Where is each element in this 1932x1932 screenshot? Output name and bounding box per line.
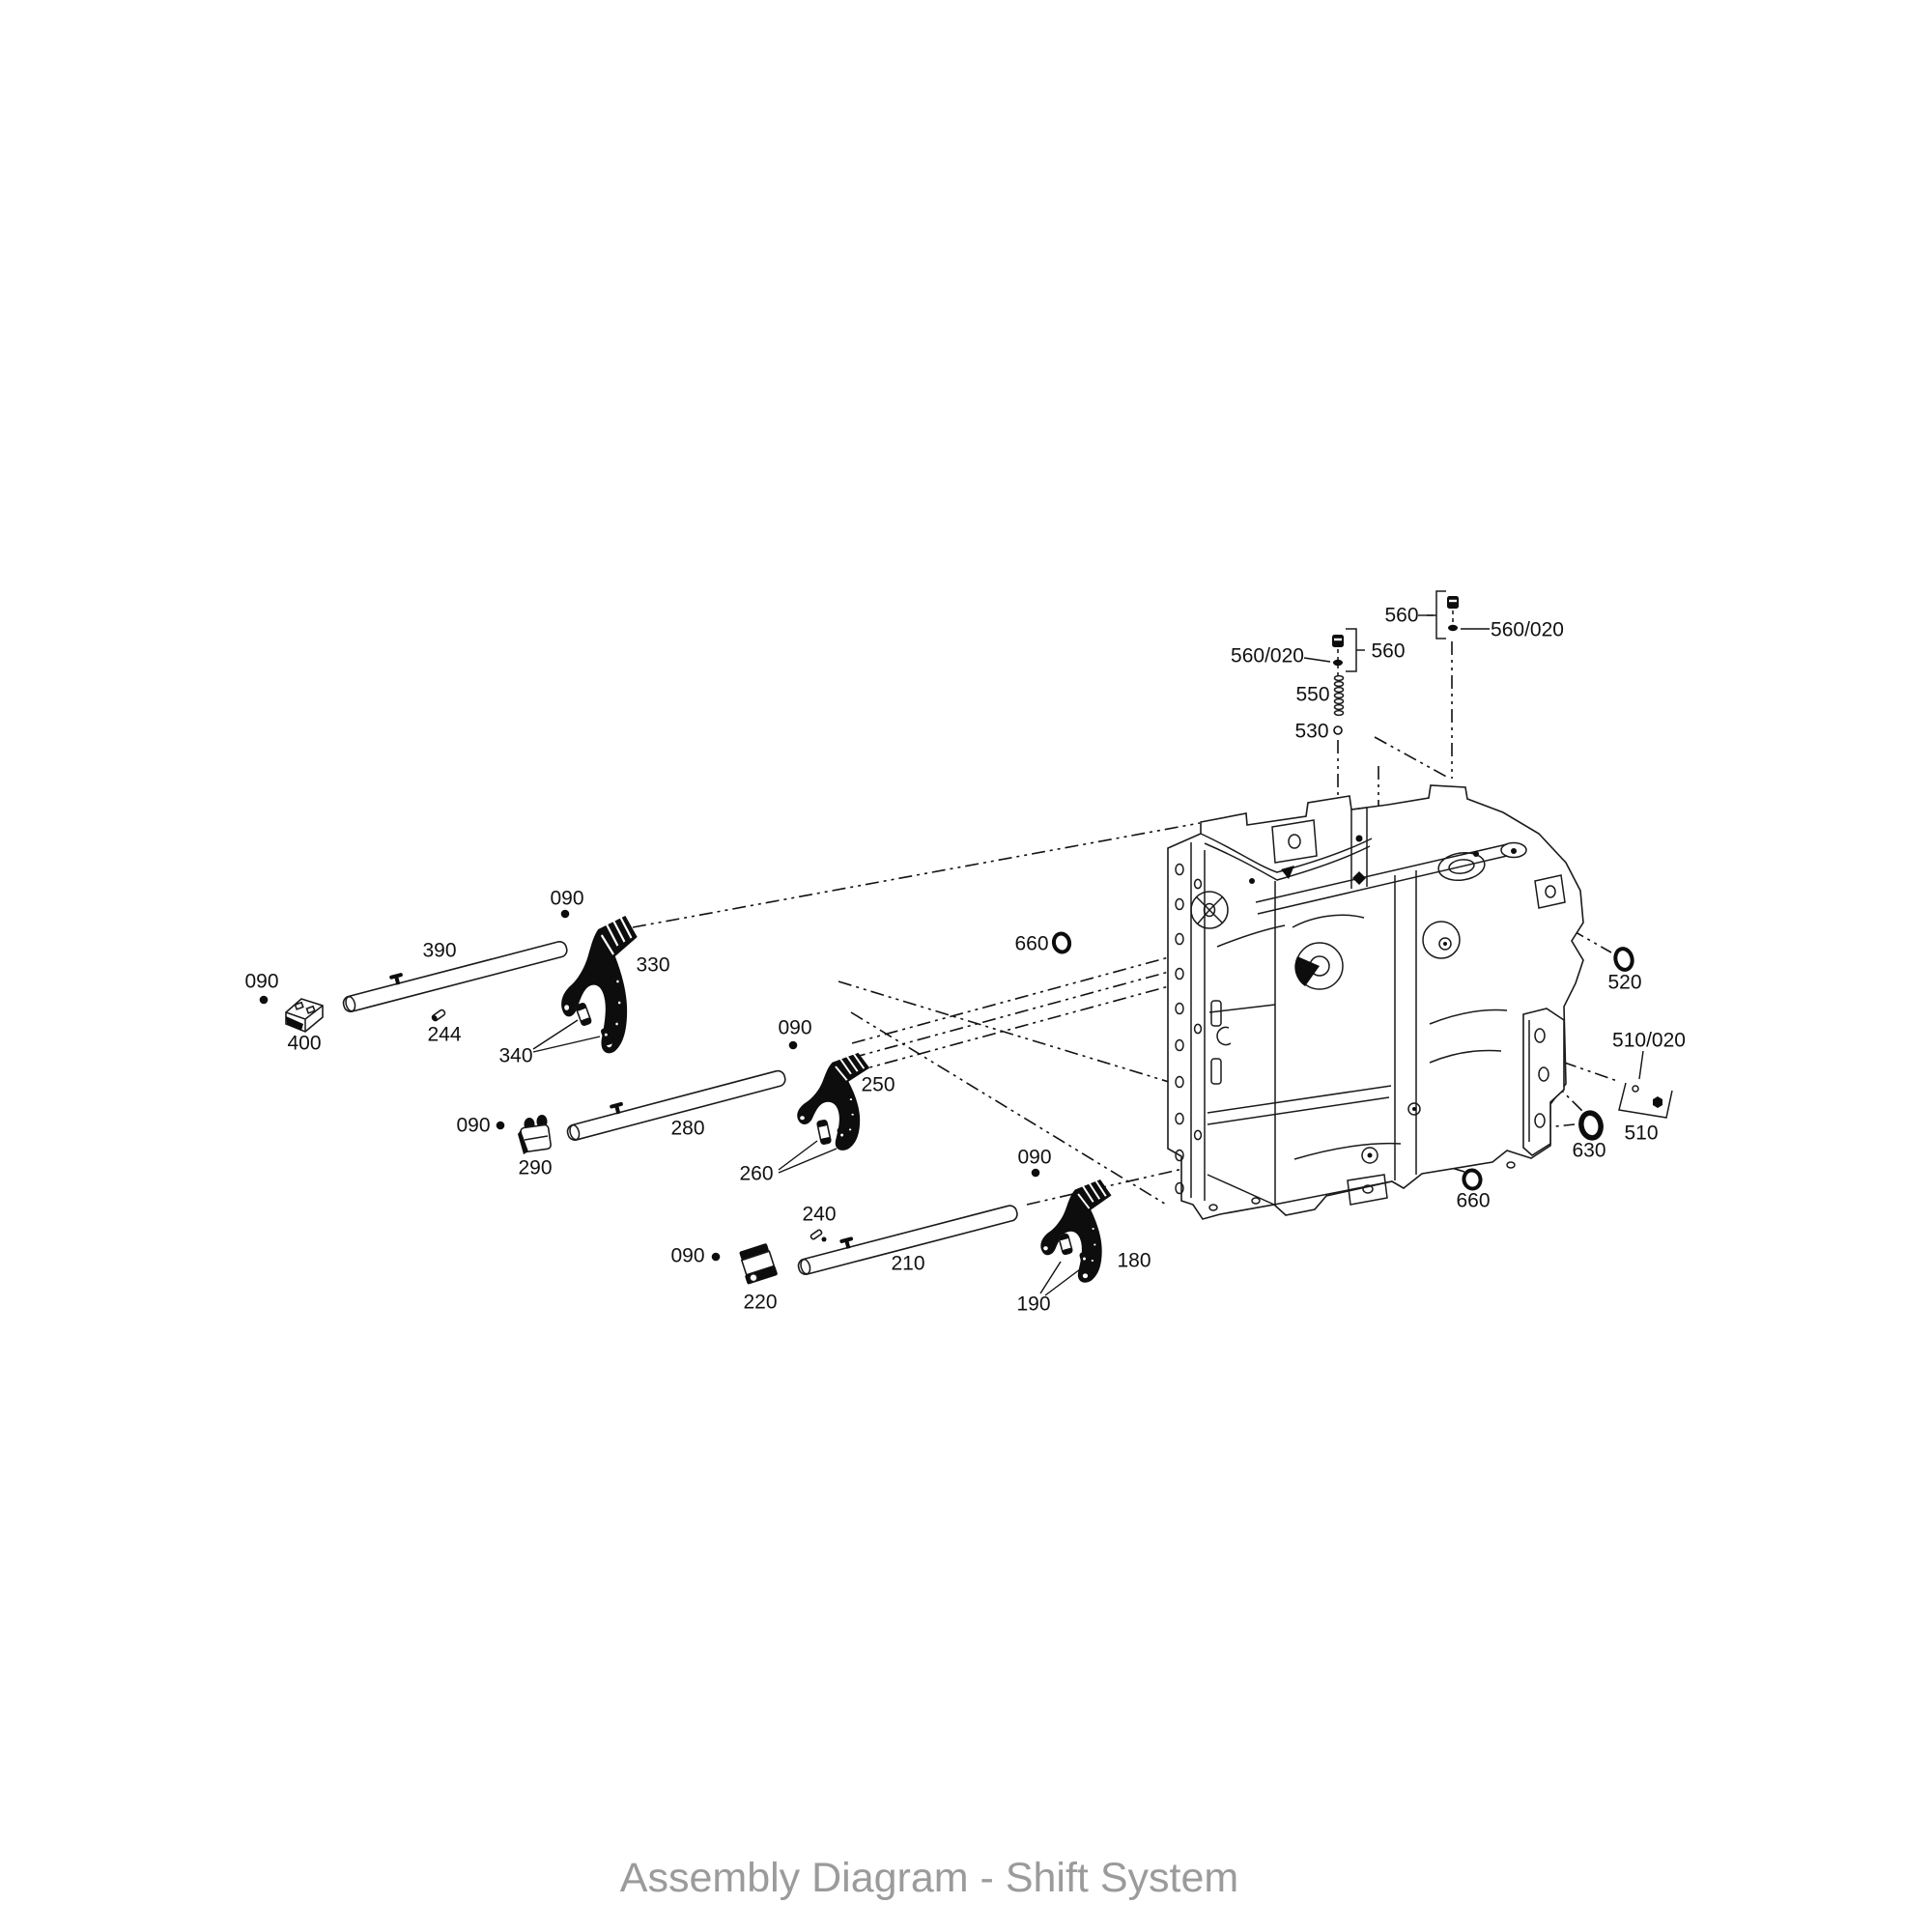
diagram-caption: Assembly Diagram - Shift System (620, 1855, 1238, 1901)
callout-210: 210 (891, 1253, 924, 1275)
callout-190: 190 (1016, 1293, 1050, 1316)
callout-340: 340 (498, 1045, 532, 1067)
callout-390: 390 (422, 940, 456, 962)
callout-280: 280 (670, 1118, 704, 1140)
shift-fork-250 (797, 1053, 869, 1151)
pin-240-dot (822, 1237, 827, 1242)
callout-520: 520 (1607, 972, 1641, 994)
callout-330: 330 (636, 954, 669, 977)
shift-fork-330 (561, 916, 638, 1053)
leader-lines (533, 1020, 1080, 1295)
pin-340-a (576, 1003, 592, 1026)
pin-190-a (1059, 1234, 1073, 1255)
block-290 (518, 1115, 552, 1154)
pin-240 (810, 1230, 823, 1240)
callout-090-fork180: 090 (1017, 1147, 1051, 1169)
spring-550 (1335, 676, 1344, 716)
callout-510: 510 (1624, 1122, 1658, 1145)
callout-510-020: 510/020 (1612, 1030, 1686, 1052)
callout-290: 290 (518, 1157, 552, 1179)
callout-660-left: 660 (1014, 933, 1048, 955)
callout-240: 240 (802, 1204, 836, 1226)
callout-560-right: 560 (1384, 605, 1418, 627)
seal-ring-630 (1579, 1111, 1604, 1140)
shift-fork-180 (1040, 1179, 1111, 1283)
callout-260: 260 (739, 1163, 773, 1185)
callout-244: 244 (427, 1024, 461, 1046)
callout-560-left: 560 (1371, 640, 1405, 663)
ring-530 (1334, 726, 1342, 734)
callout-400: 400 (287, 1033, 321, 1055)
callout-090-290: 090 (456, 1115, 490, 1137)
block-400 (286, 999, 323, 1032)
screw-plug-510-group (1619, 1051, 1672, 1118)
callout-550: 550 (1295, 684, 1329, 706)
callout-220: 220 (743, 1292, 777, 1314)
callout-180: 180 (1117, 1250, 1151, 1272)
block-220 (737, 1242, 778, 1284)
callout-090-400: 090 (244, 971, 278, 993)
callout-660-bottom: 660 (1456, 1190, 1490, 1212)
callout-250: 250 (861, 1074, 895, 1096)
diagram-page: 090 390 330 090 400 244 340 090 290 280 … (0, 0, 1932, 1932)
callout-090-220: 090 (670, 1245, 704, 1267)
bolt-group-560-right (1418, 591, 1490, 639)
pin-260-a (817, 1120, 832, 1145)
exploded-assembly-drawing: 090 390 330 090 400 244 340 090 290 280 … (0, 0, 1932, 1932)
o-ring-660-left (1052, 932, 1071, 953)
callout-560-020-left: 560/020 (1231, 645, 1304, 668)
callout-530: 530 (1294, 721, 1328, 743)
o-ring-660-bottom (1463, 1169, 1483, 1190)
callout-560-020-right: 560/020 (1491, 619, 1564, 641)
pin-244 (431, 1009, 445, 1022)
callout-090-fork330: 090 (550, 888, 583, 910)
o-ring-520 (1613, 947, 1634, 971)
callout-630: 630 (1572, 1140, 1605, 1162)
transmission-housing (1168, 785, 1583, 1219)
callout-090-fork250: 090 (778, 1017, 811, 1039)
